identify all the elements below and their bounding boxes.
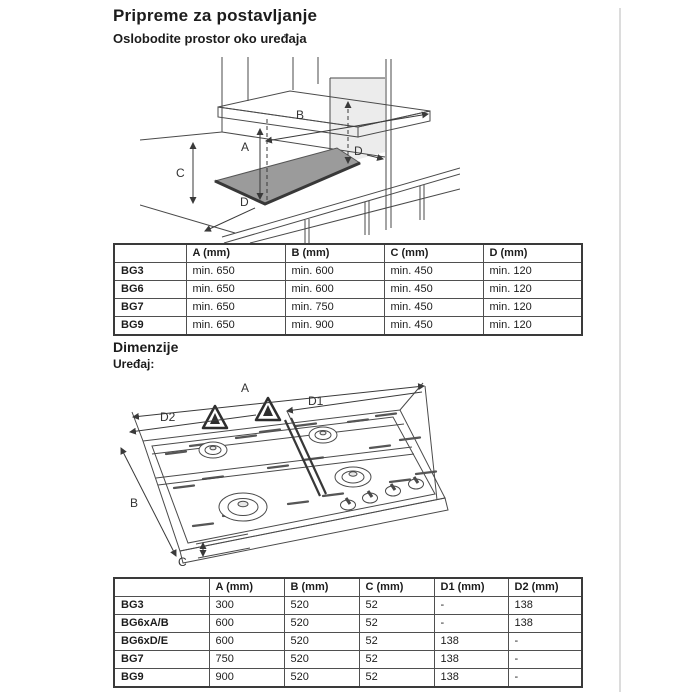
table-header-row: A (mm)B (mm)C (mm)D1 (mm)D2 (mm) (114, 578, 582, 597)
device-dimensions-table: A (mm)B (mm)C (mm)D1 (mm)D2 (mm)BG330052… (113, 577, 583, 688)
value-cell: 138 (508, 615, 582, 633)
value-cell: min. 650 (186, 263, 285, 281)
table-row: BG6min. 650min. 600min. 450min. 120 (114, 281, 582, 299)
value-cell: min. 650 (186, 317, 285, 336)
column-header: D (mm) (483, 244, 582, 263)
value-cell: min. 120 (483, 299, 582, 317)
pan-supports (152, 414, 436, 527)
value-cell: min. 450 (384, 281, 483, 299)
row-label: BG9 (114, 317, 186, 336)
column-header: D2 (mm) (508, 578, 582, 597)
value-cell: min. 650 (186, 299, 285, 317)
value-cell: 520 (284, 669, 359, 688)
value-cell: 600 (209, 633, 284, 651)
hood-body (218, 91, 430, 137)
clearance-table: A (mm)B (mm)C (mm)D (mm)BG3min. 650min. … (113, 243, 583, 336)
value-cell: 138 (434, 669, 508, 688)
dim-label-c: C (178, 555, 187, 569)
value-cell: 52 (359, 651, 434, 669)
value-cell: 520 (284, 633, 359, 651)
table-row: BG330052052-138 (114, 597, 582, 615)
value-cell: min. 450 (384, 299, 483, 317)
table-row: BG6xD/E60052052138- (114, 633, 582, 651)
value-cell: min. 450 (384, 317, 483, 336)
dim-label-b: B (130, 496, 138, 510)
value-cell: - (434, 597, 508, 615)
table-row: BG9min. 650min. 900min. 450min. 120 (114, 317, 582, 336)
value-cell: 750 (209, 651, 284, 669)
value-cell: 138 (434, 651, 508, 669)
value-cell: min. 450 (384, 263, 483, 281)
dim-label-d-bottom: D (240, 195, 249, 209)
device-label: Uređaj: (113, 357, 154, 371)
value-cell: 900 (209, 669, 284, 688)
row-label: BG6 (114, 281, 186, 299)
value-cell: 520 (284, 597, 359, 615)
value-cell: 52 (359, 633, 434, 651)
row-label: BG9 (114, 669, 209, 688)
value-cell: min. 120 (483, 281, 582, 299)
value-cell: min. 120 (483, 263, 582, 281)
dim-label-c: C (176, 166, 185, 180)
value-cell: - (508, 669, 582, 688)
clearance-illustration: A B C D D (140, 55, 460, 243)
column-header: B (mm) (285, 244, 384, 263)
hood-chimney (248, 57, 318, 101)
value-cell: - (508, 633, 582, 651)
dimension-c: C (176, 143, 193, 203)
value-cell: 138 (508, 597, 582, 615)
row-label: BG6xD/E (114, 633, 209, 651)
value-cell: 138 (434, 633, 508, 651)
page-edge-line (619, 8, 621, 692)
dim-label-a: A (241, 381, 249, 395)
dim-label-d-top: D (354, 144, 363, 158)
row-label: BG3 (114, 597, 209, 615)
value-cell: 520 (284, 615, 359, 633)
table-row: BG3min. 650min. 600min. 450min. 120 (114, 263, 582, 281)
table-row: BG990052052138- (114, 669, 582, 688)
column-header: D1 (mm) (434, 578, 508, 597)
value-cell: min. 120 (483, 317, 582, 336)
row-label: BG7 (114, 299, 186, 317)
manual-page: Pripreme za postavljanje Oslobodite pros… (0, 0, 700, 700)
column-header: C (mm) (384, 244, 483, 263)
dimension-d2: D2 (130, 410, 256, 432)
value-cell: min. 750 (285, 299, 384, 317)
value-cell: 52 (359, 597, 434, 615)
section-subtitle: Oslobodite prostor oko uređaja (113, 31, 307, 46)
value-cell: 600 (209, 615, 284, 633)
table-header-row: A (mm)B (mm)C (mm)D (mm) (114, 244, 582, 263)
value-cell: min. 600 (285, 263, 384, 281)
column-header (114, 244, 186, 263)
value-cell: min. 900 (285, 317, 384, 336)
value-cell: 52 (359, 669, 434, 688)
value-cell: 300 (209, 597, 284, 615)
dimension-d-bottom: D (205, 195, 255, 231)
column-header: A (mm) (209, 578, 284, 597)
value-cell: min. 600 (285, 281, 384, 299)
value-cell: 520 (284, 651, 359, 669)
table-row: BG6xA/B60052052-138 (114, 615, 582, 633)
left-wall (140, 57, 235, 233)
column-header (114, 578, 209, 597)
column-header: C (mm) (359, 578, 434, 597)
hob-slab (215, 148, 360, 204)
column-header: A (mm) (186, 244, 285, 263)
row-label: BG3 (114, 263, 186, 281)
value-cell: - (508, 651, 582, 669)
value-cell: - (434, 615, 508, 633)
value-cell: min. 650 (186, 281, 285, 299)
dimensions-heading: Dimenzije (113, 339, 178, 355)
dim-label-d1: D1 (308, 394, 324, 408)
dim-label-a: A (241, 140, 249, 154)
hob-illustration: A D1 D2 B C (108, 376, 478, 576)
row-label: BG7 (114, 651, 209, 669)
dimension-b: B (121, 448, 176, 556)
dim-label-d2: D2 (160, 410, 176, 424)
row-label: BG6xA/B (114, 615, 209, 633)
column-header: B (mm) (284, 578, 359, 597)
page-title: Pripreme za postavljanje (113, 6, 317, 26)
dim-label-b: B (296, 108, 304, 122)
value-cell: 52 (359, 615, 434, 633)
table-row: BG775052052138- (114, 651, 582, 669)
table-row: BG7min. 650min. 750min. 450min. 120 (114, 299, 582, 317)
